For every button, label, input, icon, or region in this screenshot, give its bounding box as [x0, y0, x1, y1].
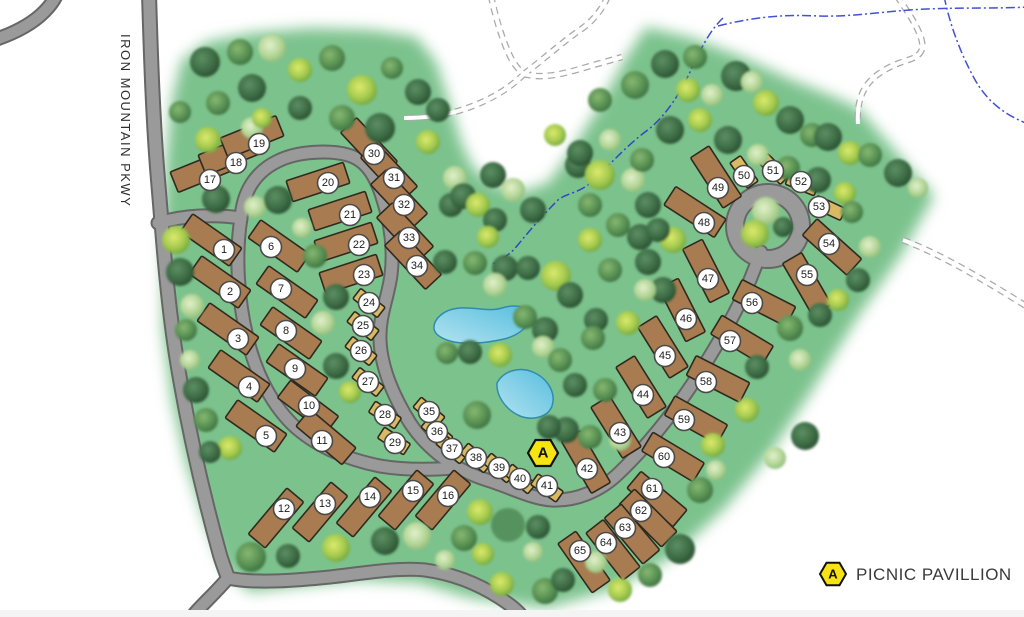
- site-badge-10: 10: [299, 396, 320, 417]
- site-badge-4: 4: [239, 377, 260, 398]
- site-number-56: 56: [746, 297, 758, 309]
- site-badge-43: 43: [610, 423, 631, 444]
- site-badge-27: 27: [358, 372, 379, 393]
- site-badge-30: 30: [364, 144, 385, 165]
- picnic-pavilion-marker: A: [528, 440, 558, 466]
- tree-icon: [701, 84, 723, 106]
- site-number-8: 8: [283, 325, 289, 337]
- site-badge-32: 32: [394, 195, 415, 216]
- site-badge-22: 22: [349, 235, 370, 256]
- site-badge-5: 5: [256, 426, 277, 447]
- tree-icon: [329, 105, 355, 131]
- site-number-3: 3: [235, 333, 241, 345]
- site-number-36: 36: [431, 426, 443, 438]
- site-badge-13: 13: [315, 494, 336, 515]
- tree-icon: [588, 88, 612, 112]
- tree-icon: [288, 96, 312, 120]
- site-number-63: 63: [619, 522, 631, 534]
- tree-icon: [548, 348, 572, 372]
- tree-icon: [764, 447, 786, 469]
- site-badge-53: 53: [809, 197, 830, 218]
- tree-icon: [292, 218, 312, 238]
- site-number-34: 34: [411, 260, 423, 272]
- tree-icon: [777, 315, 803, 341]
- site-number-44: 44: [637, 389, 649, 401]
- site-number-27: 27: [362, 376, 374, 388]
- tree-icon: [458, 340, 482, 364]
- site-badge-16: 16: [438, 486, 459, 507]
- pavilion-marker-letter: A: [538, 445, 549, 462]
- site-number-11: 11: [316, 435, 327, 447]
- tree-icon: [578, 193, 602, 217]
- site-badge-17: 17: [200, 170, 221, 191]
- site-number-19: 19: [253, 138, 265, 150]
- tree-icon: [463, 251, 487, 275]
- site-badge-35: 35: [419, 402, 440, 423]
- site-number-29: 29: [389, 437, 401, 449]
- tree-icon: [183, 377, 209, 403]
- tree-icon: [606, 213, 630, 237]
- tree-icon: [405, 79, 431, 105]
- site-number-35: 35: [423, 406, 435, 418]
- site-number-53: 53: [813, 201, 825, 213]
- tree-icon: [244, 196, 266, 218]
- tree-icon: [175, 319, 197, 341]
- site-number-38: 38: [470, 452, 482, 464]
- tree-icon: [467, 499, 493, 525]
- tree-icon: [501, 178, 525, 202]
- tree-icon: [436, 342, 458, 364]
- tree-icon: [635, 249, 661, 275]
- tree-icon: [166, 258, 194, 286]
- tree-icon: [776, 106, 804, 134]
- site-badge-6: 6: [261, 237, 282, 258]
- tree-icon: [557, 282, 583, 308]
- site-badge-23: 23: [354, 265, 375, 286]
- tree-icon: [581, 326, 605, 350]
- tree-icon: [238, 74, 266, 102]
- site-badge-15: 15: [403, 481, 424, 502]
- site-number-13: 13: [319, 498, 331, 510]
- tree-icon: [433, 250, 457, 274]
- tree-icon: [516, 256, 540, 280]
- tree-icon: [381, 57, 403, 79]
- campground-map: 1234567891011121314151617181920212223242…: [0, 0, 1024, 617]
- tree-icon: [551, 568, 575, 592]
- site-number-61: 61: [646, 483, 658, 495]
- site-badge-28: 28: [375, 405, 396, 426]
- site-badge-56: 56: [742, 293, 763, 314]
- site-badge-25: 25: [353, 316, 374, 337]
- site-number-30: 30: [368, 148, 380, 160]
- site-badge-18: 18: [226, 153, 247, 174]
- site-badge-24: 24: [359, 293, 380, 314]
- legend-marker-letter: A: [828, 567, 838, 582]
- page-edge-strip: [0, 610, 1024, 617]
- site-badge-34: 34: [407, 256, 428, 277]
- site-number-24: 24: [363, 297, 375, 309]
- tree-icon: [846, 268, 870, 292]
- site-badge-63: 63: [615, 518, 636, 539]
- tree-icon: [608, 578, 632, 602]
- tree-icon: [908, 178, 928, 198]
- tree-icon: [714, 126, 742, 154]
- tree-icon: [773, 217, 793, 237]
- tree-icon: [858, 143, 882, 167]
- tree-icon: [480, 162, 506, 188]
- tree-icon: [162, 226, 190, 254]
- site-number-40: 40: [514, 473, 526, 485]
- tree-icon: [688, 108, 712, 132]
- tree-icon: [741, 220, 769, 248]
- tree-icon: [578, 228, 602, 252]
- tree-icon: [488, 343, 512, 367]
- site-badge-21: 21: [340, 205, 361, 226]
- site-number-62: 62: [635, 505, 647, 517]
- tree-icon: [651, 50, 679, 78]
- tree-icon: [323, 284, 349, 310]
- site-badge-2: 2: [220, 282, 241, 303]
- site-number-5: 5: [263, 430, 269, 442]
- tree-icon: [236, 542, 266, 572]
- tree-icon: [789, 349, 811, 371]
- tree-icon: [665, 534, 695, 564]
- site-badge-39: 39: [489, 458, 510, 479]
- site-number-54: 54: [823, 238, 835, 250]
- tree-icon: [319, 45, 345, 71]
- tree-icon: [884, 159, 912, 187]
- tree-icon: [472, 543, 494, 565]
- tree-icon: [463, 401, 491, 429]
- tree-icon: [834, 182, 856, 204]
- site-badge-61: 61: [642, 479, 663, 500]
- site-badge-55: 55: [797, 265, 818, 286]
- site-badge-36: 36: [427, 422, 448, 443]
- tree-icon: [537, 415, 561, 439]
- site-badge-9: 9: [285, 359, 306, 380]
- site-badge-57: 57: [720, 331, 741, 352]
- tree-icon: [578, 425, 602, 449]
- tree-icon: [322, 534, 350, 562]
- legend: A PICNIC PAVILLION: [820, 563, 1012, 586]
- site-badge-62: 62: [631, 501, 652, 522]
- tree-icon: [347, 75, 377, 105]
- site-badge-42: 42: [577, 459, 598, 480]
- tree-icon: [190, 47, 220, 77]
- site-number-12: 12: [278, 503, 290, 515]
- tree-icon: [563, 373, 587, 397]
- tree-icon: [323, 353, 349, 379]
- tree-icon: [311, 311, 335, 335]
- site-badge-49: 49: [708, 178, 729, 199]
- site-number-43: 43: [614, 427, 626, 439]
- site-number-32: 32: [398, 199, 410, 211]
- site-number-31: 31: [388, 172, 400, 184]
- site-badge-40: 40: [510, 469, 531, 490]
- tree-icon: [585, 160, 615, 190]
- tree-icon: [371, 527, 399, 555]
- tree-icon: [616, 311, 640, 335]
- site-badge-45: 45: [655, 346, 676, 367]
- site-number-28: 28: [379, 409, 391, 421]
- tree-icon: [706, 460, 726, 480]
- site-number-41: 41: [541, 480, 553, 492]
- site-badge-11: 11: [312, 431, 333, 452]
- tree-icon: [227, 39, 253, 65]
- site-number-52: 52: [795, 176, 807, 188]
- tree-icon: [638, 563, 662, 587]
- tree-icon: [753, 90, 779, 116]
- tree-icon: [676, 78, 700, 102]
- site-number-37: 37: [446, 443, 458, 455]
- tree-icon: [646, 218, 670, 242]
- tree-icon: [814, 123, 842, 151]
- tree-icon: [276, 544, 300, 568]
- tree-icon: [490, 572, 514, 596]
- tree-icon: [701, 433, 725, 457]
- tree-icon: [416, 130, 440, 154]
- tree-icon: [426, 98, 450, 122]
- site-badge-12: 12: [274, 499, 295, 520]
- tree-icon: [567, 140, 593, 166]
- site-badge-44: 44: [633, 385, 654, 406]
- site-badge-20: 20: [318, 173, 339, 194]
- site-badge-64: 64: [596, 533, 617, 554]
- site-number-47: 47: [702, 273, 714, 285]
- tree-icon: [451, 525, 477, 551]
- tree-icon: [258, 34, 286, 62]
- site-number-20: 20: [322, 177, 334, 189]
- site-number-64: 64: [600, 537, 612, 549]
- tree-icon: [365, 113, 395, 143]
- tree-icon: [791, 422, 819, 450]
- tree-icon: [491, 508, 525, 542]
- tree-icon: [435, 550, 455, 570]
- tree-icon: [303, 244, 327, 268]
- site-number-57: 57: [724, 335, 736, 347]
- tree-icon: [841, 201, 863, 223]
- site-badge-48: 48: [694, 213, 715, 234]
- site-badge-47: 47: [698, 269, 719, 290]
- site-number-4: 4: [246, 381, 252, 393]
- site-badge-14: 14: [360, 487, 381, 508]
- site-number-10: 10: [303, 400, 315, 412]
- tree-icon: [593, 378, 617, 402]
- site-badge-65: 65: [570, 541, 591, 562]
- site-number-21: 21: [344, 209, 356, 221]
- site-number-7: 7: [278, 283, 284, 295]
- site-number-39: 39: [493, 462, 505, 474]
- site-badge-59: 59: [674, 410, 695, 431]
- tree-icon: [194, 408, 218, 432]
- site-number-18: 18: [230, 157, 242, 169]
- tree-icon: [483, 273, 507, 297]
- site-number-65: 65: [574, 545, 586, 557]
- tree-icon: [169, 101, 191, 123]
- site-badge-3: 3: [228, 329, 249, 350]
- site-number-50: 50: [738, 170, 750, 182]
- tree-icon: [808, 303, 832, 327]
- legend-pavilion-icon: A: [820, 563, 846, 586]
- tree-icon: [598, 258, 622, 282]
- tree-icon: [656, 116, 684, 144]
- site-number-25: 25: [357, 320, 369, 332]
- site-number-48: 48: [698, 217, 710, 229]
- site-badge-19: 19: [249, 134, 270, 155]
- site-number-16: 16: [442, 490, 454, 502]
- site-number-9: 9: [292, 363, 298, 375]
- site-number-33: 33: [403, 232, 415, 244]
- tree-icon: [264, 186, 292, 214]
- site-number-23: 23: [358, 269, 370, 281]
- campground-map-canvas: 1234567891011121314151617181920212223242…: [0, 0, 1024, 617]
- tree-icon: [526, 515, 550, 539]
- tree-icon: [403, 522, 431, 550]
- tree-icon: [599, 129, 621, 151]
- tree-icon: [635, 192, 661, 218]
- site-badge-46: 46: [676, 309, 697, 330]
- site-number-58: 58: [700, 376, 712, 388]
- tree-icon: [859, 236, 881, 258]
- site-number-26: 26: [355, 345, 367, 357]
- site-badge-58: 58: [696, 372, 717, 393]
- site-badge-7: 7: [271, 279, 292, 300]
- tree-icon: [180, 350, 200, 370]
- site-number-2: 2: [227, 286, 233, 298]
- site-badge-33: 33: [399, 228, 420, 249]
- site-number-49: 49: [712, 182, 724, 194]
- tree-icon: [288, 58, 312, 82]
- site-number-42: 42: [581, 463, 593, 475]
- site-number-51: 51: [767, 165, 779, 177]
- site-number-17: 17: [204, 174, 216, 186]
- site-badge-1: 1: [214, 240, 235, 261]
- tree-icon: [745, 355, 769, 379]
- site-badge-8: 8: [276, 321, 297, 342]
- site-badge-50: 50: [734, 166, 755, 187]
- site-badge-54: 54: [819, 234, 840, 255]
- tree-icon: [544, 124, 566, 146]
- site-badge-29: 29: [385, 433, 406, 454]
- site-number-45: 45: [659, 350, 671, 362]
- tree-icon: [683, 45, 707, 69]
- iron-mountain-pkwy-label: IRON MOUNTAIN PKWY: [118, 34, 133, 207]
- tree-icon: [741, 71, 763, 93]
- site-number-59: 59: [678, 414, 690, 426]
- tree-icon: [520, 197, 546, 223]
- tree-icon: [477, 226, 499, 248]
- tree-icon: [195, 127, 221, 153]
- tree-icon: [206, 91, 230, 115]
- tree-icon: [634, 279, 656, 301]
- site-badge-38: 38: [466, 448, 487, 469]
- tree-icon: [827, 289, 849, 311]
- site-number-22: 22: [353, 239, 365, 251]
- site-number-60: 60: [658, 451, 670, 463]
- tree-icon: [735, 398, 759, 422]
- site-badge-31: 31: [384, 168, 405, 189]
- site-number-14: 14: [364, 491, 376, 503]
- site-badge-26: 26: [351, 341, 372, 362]
- legend-pavilion-label: PICNIC PAVILLION: [856, 565, 1012, 584]
- site-number-55: 55: [801, 269, 813, 281]
- tree-icon: [523, 542, 543, 562]
- site-badge-60: 60: [654, 447, 675, 468]
- site-number-6: 6: [268, 241, 274, 253]
- site-number-46: 46: [680, 313, 692, 325]
- site-number-15: 15: [407, 485, 419, 497]
- site-badge-51: 51: [763, 161, 784, 182]
- site-badge-41: 41: [537, 476, 558, 497]
- tree-icon: [199, 441, 221, 463]
- tree-icon: [218, 436, 242, 460]
- tree-icon: [621, 71, 649, 99]
- site-badge-52: 52: [791, 172, 812, 193]
- site-number-1: 1: [221, 244, 227, 256]
- tree-icon: [180, 294, 204, 318]
- site-badge-37: 37: [442, 439, 463, 460]
- tree-icon: [630, 148, 654, 172]
- tree-icon: [252, 108, 272, 128]
- tree-icon: [687, 477, 713, 503]
